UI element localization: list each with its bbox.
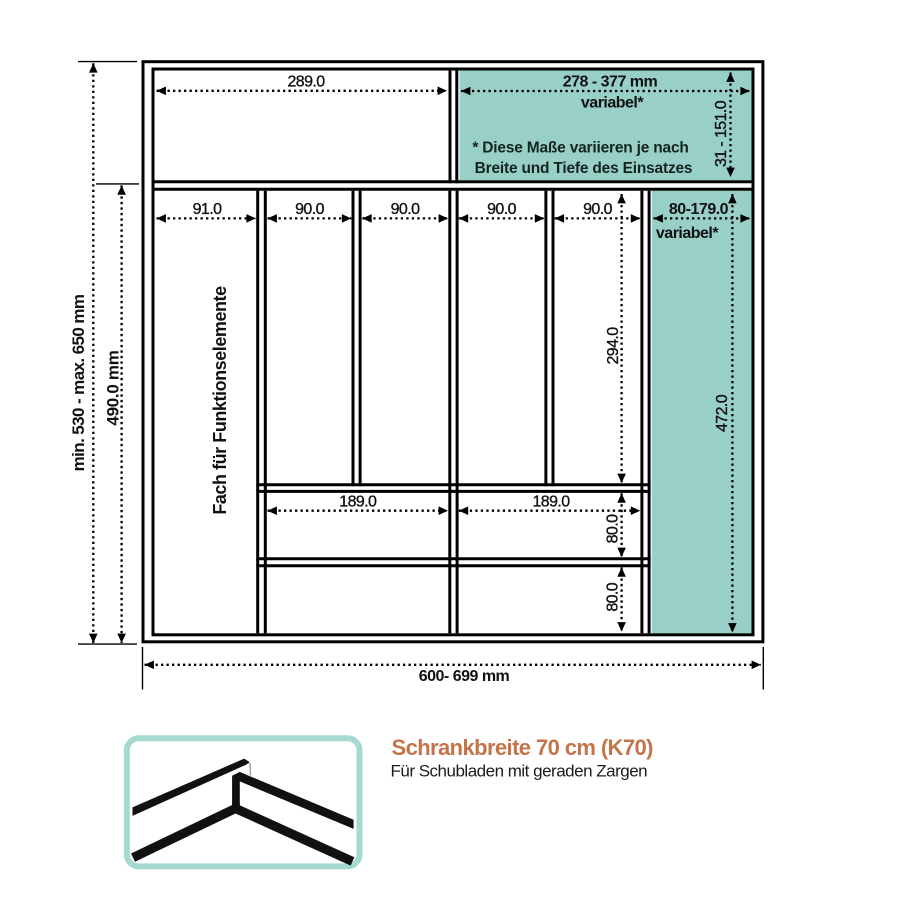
svg-text:490.0 mm: 490.0 mm [104, 350, 123, 425]
svg-text:80.0: 80.0 [605, 514, 622, 543]
svg-text:Fach für Funktionselemente: Fach für Funktionselemente [210, 286, 230, 515]
svg-text:189.0: 189.0 [339, 494, 377, 511]
svg-text:80-179.0: 80-179.0 [669, 201, 729, 218]
svg-text:31 - 151.0: 31 - 151.0 [713, 100, 730, 167]
svg-text:278 - 377 mm: 278 - 377 mm [563, 73, 658, 90]
svg-text:90.0: 90.0 [295, 201, 324, 218]
svg-text:Schrankbreite 70 cm (K70): Schrankbreite 70 cm (K70) [392, 735, 654, 760]
svg-text:600- 699 mm: 600- 699 mm [419, 668, 510, 685]
svg-text:* Diese Maße variieren je nach: * Diese Maße variieren je nach [472, 140, 688, 157]
svg-text:variabel*: variabel* [581, 94, 644, 111]
svg-text:90.0: 90.0 [487, 201, 516, 218]
svg-text:80.0: 80.0 [605, 582, 622, 611]
svg-text:variabel*: variabel* [656, 225, 719, 242]
svg-text:189.0: 189.0 [532, 494, 570, 511]
svg-text:294.0: 294.0 [605, 327, 622, 365]
svg-text:289.0: 289.0 [287, 73, 325, 90]
svg-text:472.0: 472.0 [714, 394, 731, 432]
svg-text:91.0: 91.0 [193, 201, 222, 218]
svg-text:min. 530 - max. 650 mm: min. 530 - max. 650 mm [69, 294, 88, 471]
svg-text:Breite und Tiefe des Einsatzes: Breite und Tiefe des Einsatzes [475, 160, 693, 177]
svg-text:Für Schubladen mit geraden Zar: Für Schubladen mit geraden Zargen [391, 761, 648, 780]
svg-text:90.0: 90.0 [391, 201, 420, 218]
svg-text:90.0: 90.0 [583, 201, 612, 218]
